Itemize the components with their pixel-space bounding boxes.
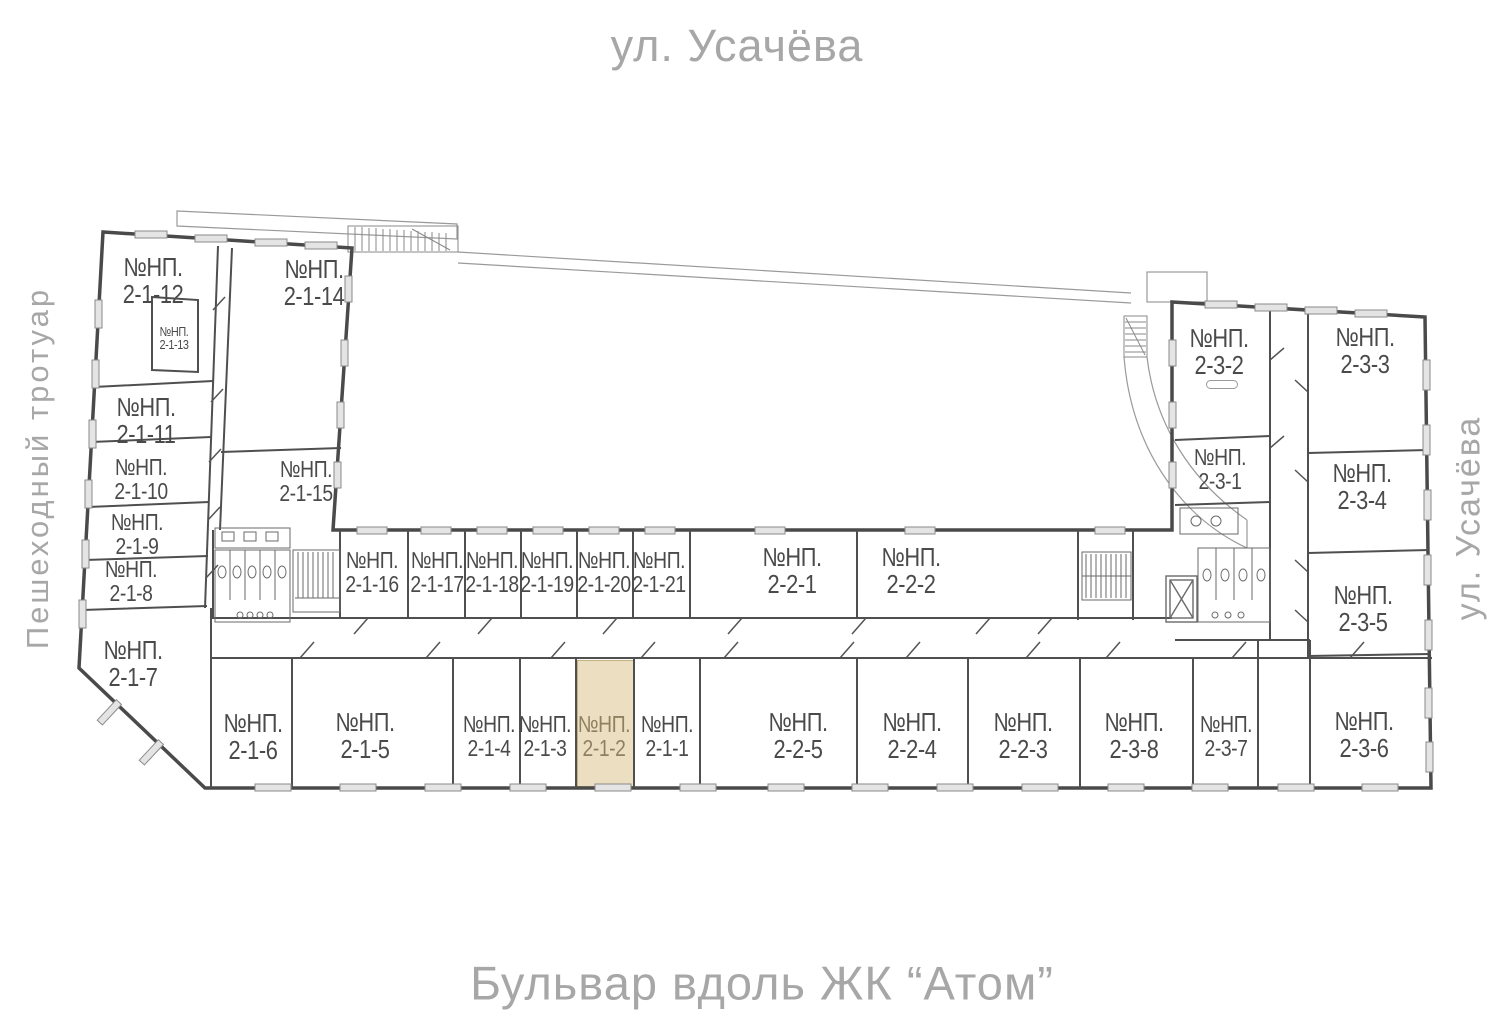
windows [79,231,1433,791]
unit-label-2-3-5[interactable]: №НП.2-3-5 [1333,582,1392,636]
unit-label-2-1-19[interactable]: №НП.2-1-19 [520,548,573,596]
unit-label-2-2-1[interactable]: №НП.2-2-1 [762,544,821,598]
unit-label-2-1-5[interactable]: №НП.2-1-5 [335,709,394,763]
unit-label-2-1-18[interactable]: №НП.2-1-18 [465,548,518,596]
unit-label-2-1-2-selected[interactable]: №НП.2-1-2 [578,712,630,760]
building-outline [79,232,1431,788]
unit-label-2-1-11[interactable]: №НП.2-1-11 [116,394,175,448]
unit-label-2-3-3[interactable]: №НП.2-3-3 [1335,324,1394,378]
unit-label-2-1-20[interactable]: №НП.2-1-20 [577,548,630,596]
unit-label-2-3-1[interactable]: №НП.2-3-1 [1194,445,1246,493]
street-label-right: ул. Усачёва [1450,416,1489,621]
unit-label-2-1-15[interactable]: №НП.2-1-15 [279,457,332,505]
unit-label-2-1-16[interactable]: №НП.2-1-16 [345,548,398,596]
floor-plan-page: ул. Усачёва Бульвар вдоль ЖК “Атом” Пеше… [0,0,1500,1026]
furniture-mark [1206,380,1238,389]
unit-label-2-1-17[interactable]: №НП.2-1-17 [410,548,463,596]
unit-label-2-2-5[interactable]: №НП.2-2-5 [768,709,827,763]
unit-label-2-1-1[interactable]: №НП.2-1-1 [641,712,693,760]
exterior-stair-icons [348,226,1147,357]
unit-label-2-1-3[interactable]: №НП.2-1-3 [519,712,571,760]
unit-label-2-1-21[interactable]: №НП.2-1-21 [632,548,685,596]
unit-label-2-3-6[interactable]: №НП.2-3-6 [1334,708,1393,762]
unit-label-2-1-12[interactable]: №НП.2-1-12 [123,254,184,308]
unit-label-2-3-8[interactable]: №НП.2-3-8 [1104,709,1163,763]
unit-label-2-2-3[interactable]: №НП.2-2-3 [993,709,1052,763]
street-label-top: ул. Усачёва [611,20,864,72]
unit-label-2-1-4[interactable]: №НП.2-1-4 [463,712,515,760]
unit-label-2-1-10[interactable]: №НП.2-1-10 [114,455,167,503]
unit-label-2-2-2[interactable]: №НП.2-2-2 [881,544,940,598]
unit-label-2-1-14[interactable]: №НП.2-1-14 [284,256,345,310]
unit-label-2-1-6[interactable]: №НП.2-1-6 [223,710,282,764]
unit-label-2-1-7[interactable]: №НП.2-1-7 [103,637,162,691]
elevator-icon [1166,576,1197,622]
unit-label-2-1-8[interactable]: №НП.2-1-8 [105,557,157,605]
unit-label-2-3-2[interactable]: №НП.2-3-2 [1189,325,1248,379]
unit-label-2-3-4[interactable]: №НП.2-3-4 [1332,460,1391,514]
unit-label-2-3-7[interactable]: №НП.2-3-7 [1200,712,1252,760]
street-label-bottom: Бульвар вдоль ЖК “Атом” [470,956,1054,1011]
unit-label-2-1-13[interactable]: №НП.2-1-13 [159,325,188,351]
unit-label-2-2-4[interactable]: №НП.2-2-4 [882,709,941,763]
unit-label-2-1-9[interactable]: №НП.2-1-9 [111,510,163,558]
floor-plan-drawing [0,0,1500,1026]
street-label-left: Пешеходный тротуар [20,287,56,649]
